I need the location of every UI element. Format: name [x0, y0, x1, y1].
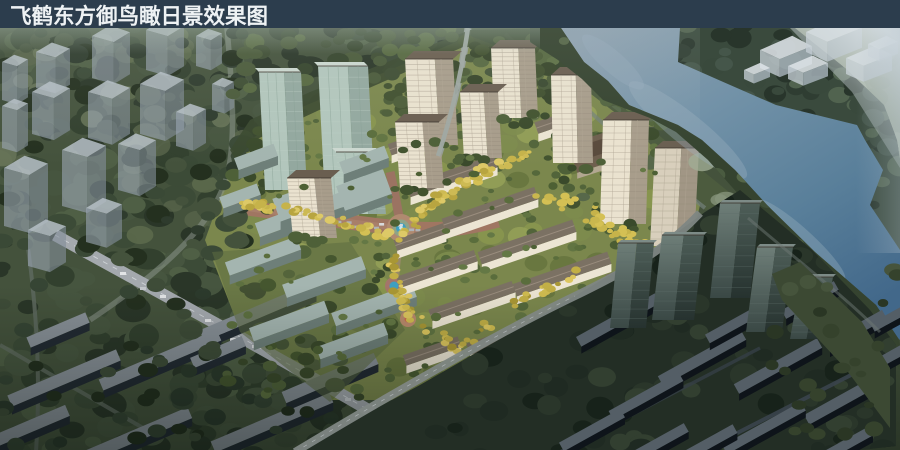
svg-text:飞鹤东方御鸟瞰日景效果图: 飞鹤东方御鸟瞰日景效果图 — [10, 4, 268, 29]
